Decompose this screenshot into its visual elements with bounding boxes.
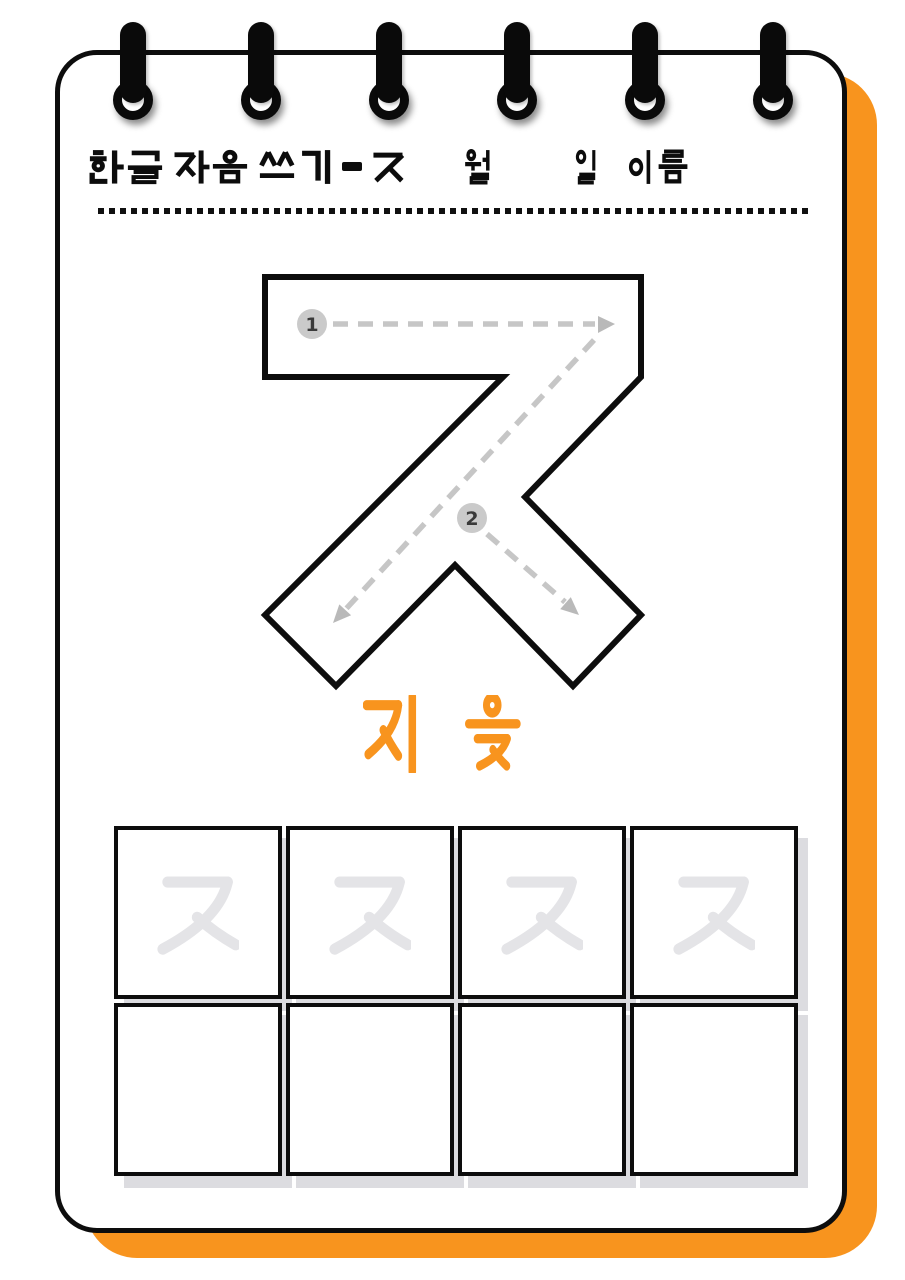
trace-letter: [157, 870, 239, 956]
name-label: [626, 149, 689, 185]
trace-letter: [329, 870, 411, 956]
binding-ring-4: [495, 22, 539, 134]
ring-bar-icon: [248, 22, 274, 103]
empty-practice-cell-3: [458, 1003, 626, 1176]
binding-ring-6: [751, 22, 795, 134]
trace-cell-1: [114, 826, 282, 999]
title-syllable-ja: [173, 149, 211, 185]
title-syllable-gi: [296, 149, 334, 185]
title-syllable-han: [88, 149, 126, 185]
binding-ring-3: [367, 22, 411, 134]
title-syllable-eum: [211, 149, 249, 185]
trace-cell-3: [458, 826, 626, 999]
ring-bar-icon: [760, 22, 786, 103]
binding-ring-5: [623, 22, 667, 134]
name-label-syllable-reum: [657, 149, 689, 185]
letter-name: [363, 695, 523, 773]
empty-practice-cell-4: [630, 1003, 798, 1176]
letter-outline: [265, 277, 641, 686]
binding-ring-2: [239, 22, 283, 134]
name-label-syllable-i: [626, 149, 654, 185]
ring-bar-icon: [376, 22, 402, 103]
worksheet-stage: 1 2: [0, 0, 905, 1280]
stroke-2-number: 2: [465, 508, 478, 530]
title-syllable-sseu: [258, 149, 296, 185]
month-label: [464, 149, 493, 185]
notebook-page: 1 2: [55, 50, 847, 1233]
empty-practice-cell-1: [114, 1003, 282, 1176]
title-dash: [342, 162, 362, 171]
title-target-letter: [371, 149, 406, 185]
stroke-1-number: 1: [305, 314, 318, 336]
title-syllable-geul: [126, 149, 164, 185]
trace-cell-2: [286, 826, 454, 999]
binding-ring-1: [111, 22, 155, 134]
practice-grid: [114, 826, 798, 1176]
empty-practice-cell-2: [286, 1003, 454, 1176]
dotted-divider: [98, 208, 812, 214]
ring-bar-icon: [120, 22, 146, 103]
letter-name-syllable-eut: [465, 695, 523, 773]
worksheet-title: [88, 147, 406, 187]
day-label: [573, 149, 599, 185]
trace-letter: [501, 870, 583, 956]
letter-name-syllable-ji: [363, 695, 421, 773]
trace-letter: [673, 870, 755, 956]
ring-bar-icon: [504, 22, 530, 103]
letter-tracing-diagram: 1 2: [243, 263, 663, 703]
ring-bar-icon: [632, 22, 658, 103]
trace-cell-4: [630, 826, 798, 999]
